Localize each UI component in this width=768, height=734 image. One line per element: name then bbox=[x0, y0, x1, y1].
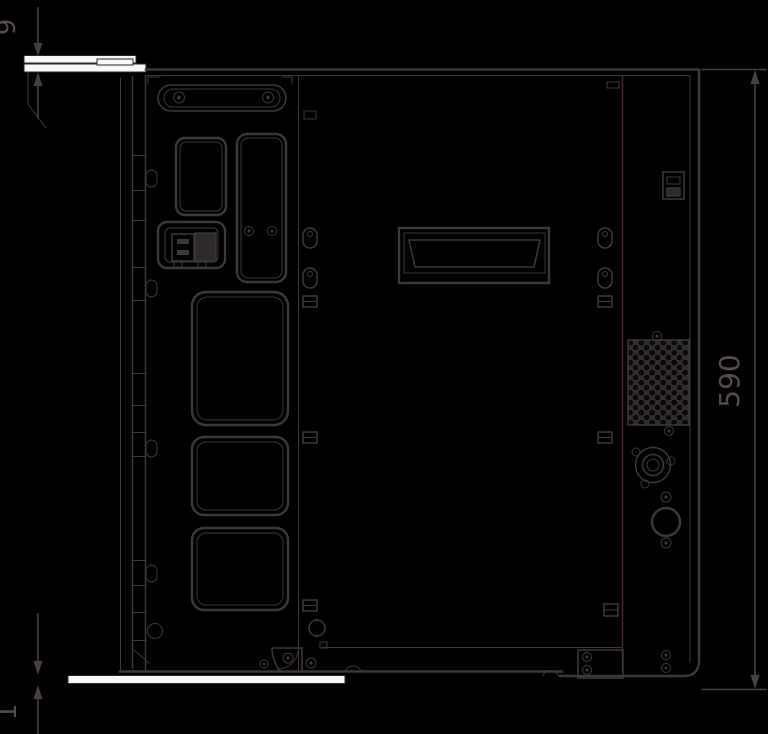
dimension-label-590: 590 bbox=[713, 354, 746, 407]
vent-grille bbox=[628, 340, 689, 425]
technical-drawing-canvas: 9 590 bbox=[0, 0, 768, 734]
side-view-drawing: 9 590 bbox=[0, 0, 768, 734]
plug-block bbox=[195, 233, 216, 261]
dimension-label-9: 9 bbox=[0, 19, 22, 36]
bottom-plate bbox=[68, 676, 345, 684]
dimension-label-1: 1 bbox=[0, 704, 23, 721]
